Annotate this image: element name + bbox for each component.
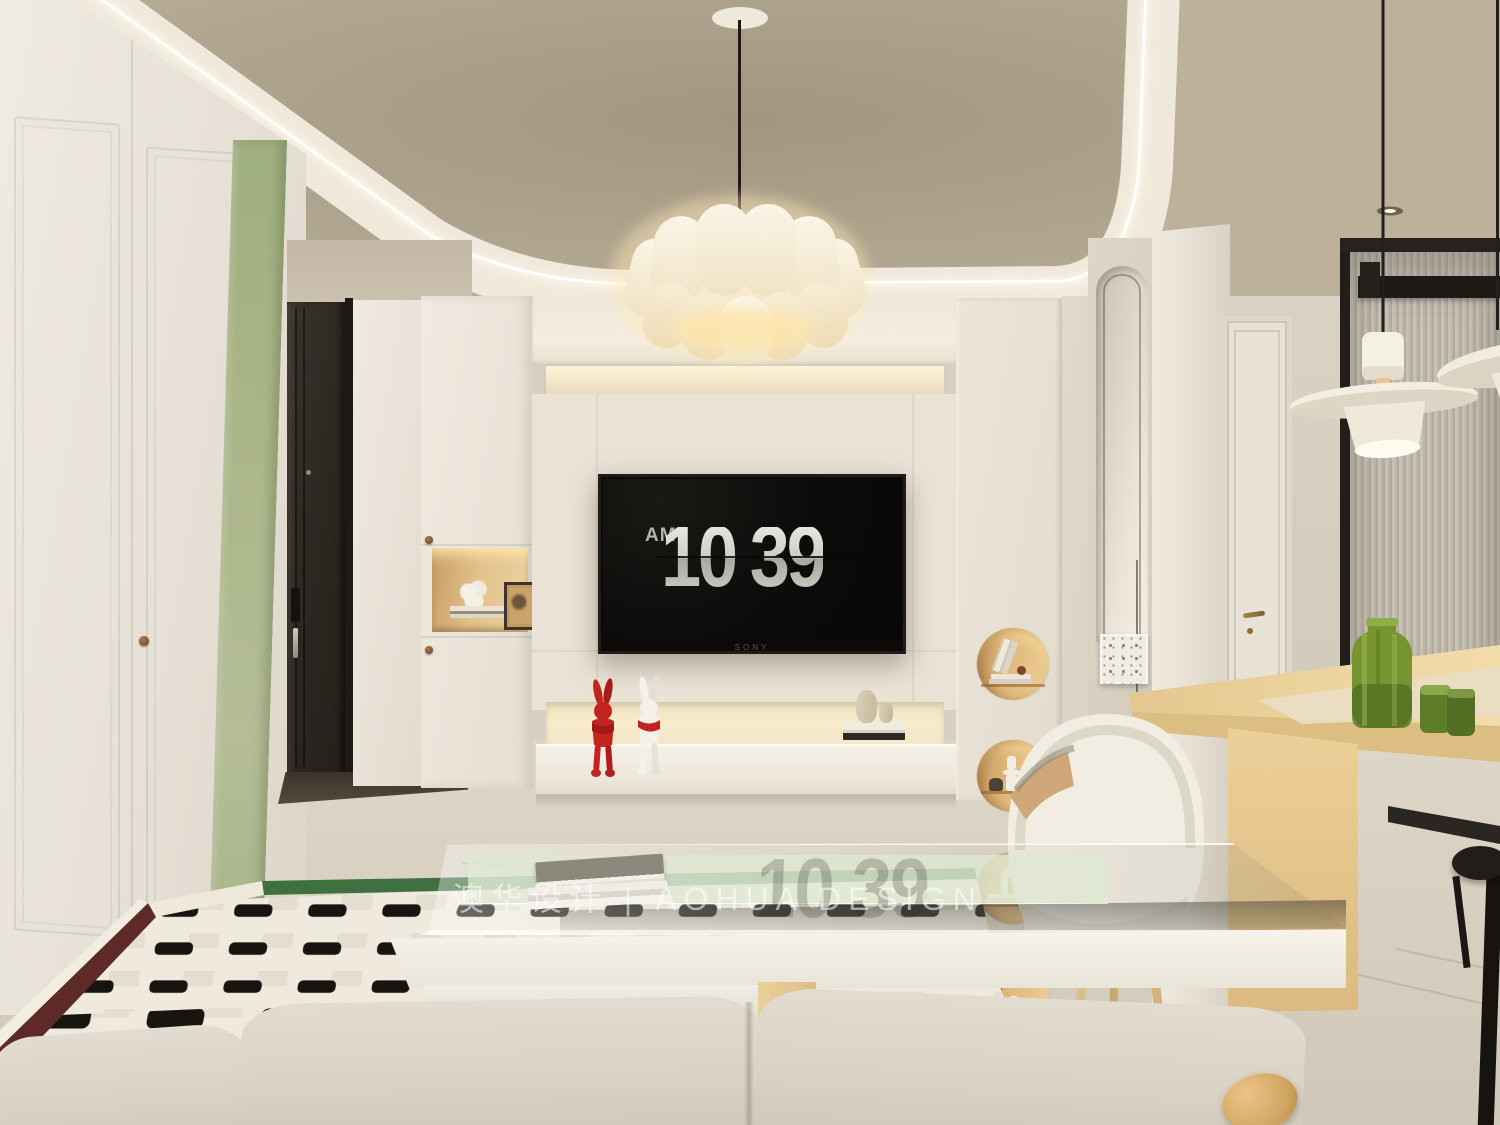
dining-pendants <box>1260 0 1500 480</box>
flip-clock: AM 10 39 <box>661 527 854 589</box>
door-groove <box>295 308 297 767</box>
sculpture-vase <box>856 690 877 723</box>
tv-brand-logo: SONY <box>601 643 903 652</box>
cabinet-knob <box>425 646 433 654</box>
lamp-underglow <box>672 308 812 352</box>
smart-lock <box>291 588 300 622</box>
pendant-cord <box>1382 0 1385 345</box>
black-stool <box>1452 846 1500 880</box>
table-support-bar <box>1388 806 1500 844</box>
arched-niche <box>1096 266 1148 642</box>
rabbit-figurines <box>580 665 690 780</box>
display-niche <box>432 548 528 632</box>
designer-watermark: 澳华设计 | AOHUA DESIGN <box>452 874 983 920</box>
cabinet-seam <box>421 636 533 638</box>
red-rabbit-figurine <box>591 678 615 777</box>
bench-shadow <box>536 794 956 808</box>
sofa-cushion <box>241 995 763 1125</box>
living-room-render: AM 10 39 SONY <box>0 0 1500 1125</box>
pendant-lamp <box>1289 0 1482 464</box>
door-peephole <box>306 470 311 475</box>
stacked-books <box>450 606 506 618</box>
white-rabbit-figurine <box>637 674 661 775</box>
green-glass-cups <box>1420 685 1475 736</box>
wardrobe-knob <box>139 636 149 646</box>
sofa-cushion <box>0 1020 272 1125</box>
sculpture-vase <box>879 702 893 723</box>
wardrobe-door-panel <box>14 116 120 937</box>
tv-screen: AM 10 39 <box>603 479 901 641</box>
entry-door <box>287 302 345 780</box>
cabinet-knob <box>425 536 433 544</box>
bench-books <box>843 722 905 740</box>
porthole-niche <box>977 628 1049 700</box>
door-frame <box>345 298 353 784</box>
shelf <box>981 684 1045 687</box>
hallway-wall <box>353 300 421 786</box>
flip-clock-split-line <box>657 556 863 558</box>
entry-cabinet <box>421 296 533 788</box>
cabinet-seam <box>421 544 533 546</box>
door-groove <box>303 308 305 767</box>
door-handle <box>293 628 298 658</box>
cloud-chandelier <box>600 0 890 380</box>
sofa-cushion-seam <box>744 1002 754 1125</box>
green-vase-tall <box>1352 618 1412 728</box>
round-decor <box>1017 666 1026 675</box>
pendant-lamp-partial <box>1434 0 1500 431</box>
tv: AM 10 39 SONY <box>598 474 906 654</box>
